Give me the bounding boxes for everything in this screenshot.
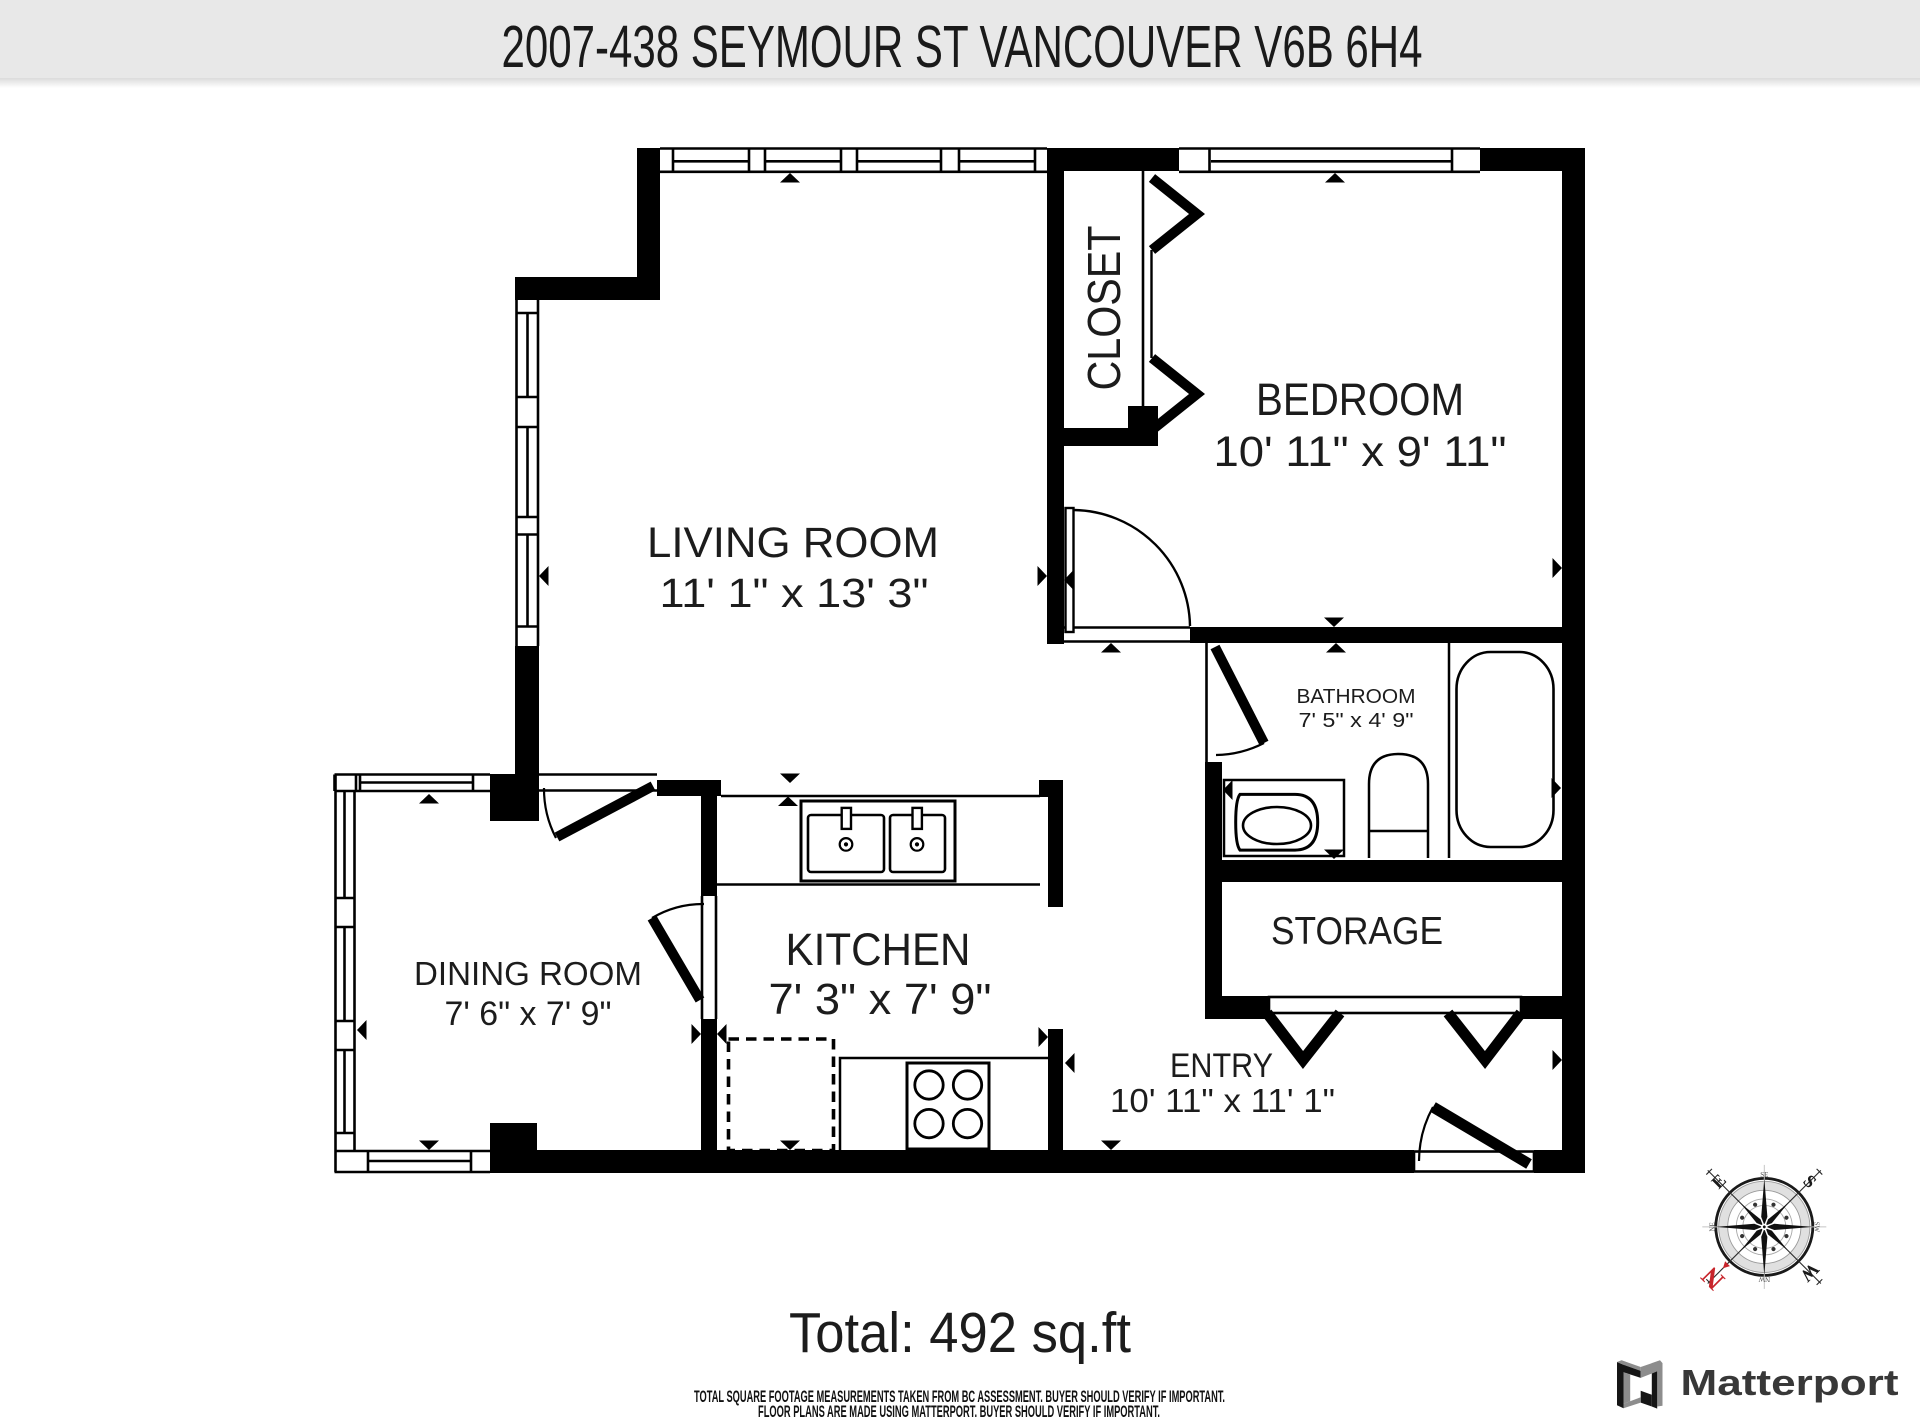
svg-text:LIVING ROOM: LIVING ROOM — [647, 520, 939, 567]
svg-text:10' 11" x 11' 1": 10' 11" x 11' 1" — [1110, 1082, 1335, 1119]
svg-text:ENTRY: ENTRY — [1170, 1047, 1273, 1085]
svg-text:FLOOR PLANS ARE MADE USING MAT: FLOOR PLANS ARE MADE USING MATTERPORT. B… — [758, 1402, 1160, 1421]
svg-text:CLOSET: CLOSET — [1078, 226, 1130, 391]
svg-text:7' 3" x 7' 9": 7' 3" x 7' 9" — [769, 975, 992, 1024]
svg-text:7' 5" x 4' 9": 7' 5" x 4' 9" — [1299, 710, 1414, 732]
svg-text:SE: SE — [1760, 1171, 1768, 1179]
svg-text:Matterport: Matterport — [1681, 1362, 1899, 1403]
svg-text:SW: SW — [1812, 1222, 1820, 1233]
svg-text:2007-438 SEYMOUR ST VANCOUVER: 2007-438 SEYMOUR ST VANCOUVER V6B 6H4 — [502, 14, 1423, 80]
svg-text:NW: NW — [1758, 1275, 1770, 1283]
svg-text:KITCHEN: KITCHEN — [786, 924, 971, 975]
svg-text:11' 1" x 13' 3": 11' 1" x 13' 3" — [660, 570, 929, 616]
svg-text:STORAGE: STORAGE — [1271, 910, 1443, 953]
svg-text:BEDROOM: BEDROOM — [1256, 374, 1464, 425]
svg-text:BATHROOM: BATHROOM — [1297, 685, 1416, 708]
svg-text:NE: NE — [1708, 1222, 1716, 1231]
svg-text:7' 6" x 7' 9": 7' 6" x 7' 9" — [445, 995, 612, 1033]
svg-text:Total: 492 sq.ft: Total: 492 sq.ft — [789, 1301, 1131, 1365]
svg-text:10' 11" x 9' 11": 10' 11" x 9' 11" — [1214, 429, 1507, 476]
svg-text:DINING ROOM: DINING ROOM — [414, 956, 642, 993]
